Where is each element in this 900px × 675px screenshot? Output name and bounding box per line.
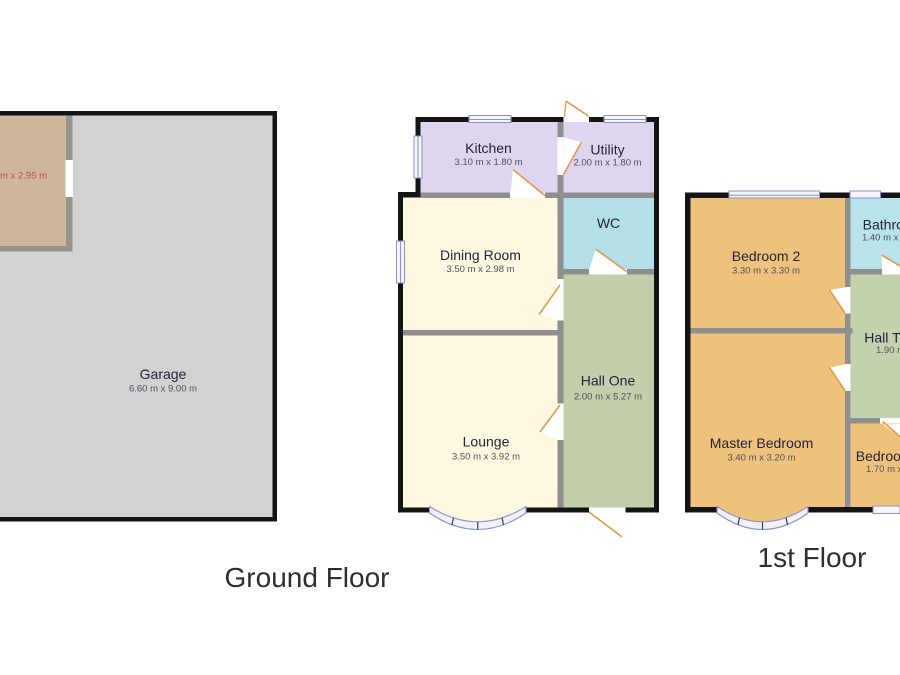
svg-text:3.40 m x 3.20 m: 3.40 m x 3.20 m <box>727 453 795 464</box>
svg-text:3.10 m x 1.80 m: 3.10 m x 1.80 m <box>454 157 522 168</box>
svg-text:Bedroom 2: Bedroom 2 <box>732 248 801 264</box>
svg-text:Bedroom 3: Bedroom 3 <box>856 448 900 464</box>
svg-text:1.70 m x 2.50 m: 1.70 m x 2.50 m <box>866 464 900 475</box>
svg-text:3.30 m x 3.30 m: 3.30 m x 3.30 m <box>732 266 800 277</box>
svg-text:Garage: Garage <box>140 366 187 382</box>
svg-text:Kitchen: Kitchen <box>465 140 512 156</box>
svg-text:Hall Two: Hall Two <box>864 330 900 346</box>
svg-text:2.00 m x 5.27 m: 2.00 m x 5.27 m <box>574 392 642 403</box>
svg-text:1st Floor: 1st Floor <box>758 542 867 573</box>
svg-text:Dining Room: Dining Room <box>440 247 521 263</box>
svg-text:Utility: Utility <box>590 142 624 158</box>
svg-text:Bathroom: Bathroom <box>863 217 900 233</box>
svg-text:1.90 m x 4.50 m: 1.90 m x 4.50 m <box>876 345 900 356</box>
svg-text:1.40 m x 2.00 m: 1.40 m x 2.00 m <box>862 233 900 244</box>
svg-text:Hall One: Hall One <box>581 373 636 389</box>
svg-text:3.50 m x 2.98 m: 3.50 m x 2.98 m <box>446 264 514 275</box>
svg-text:6.60 m x 9.00 m: 6.60 m x 9.00 m <box>129 384 197 395</box>
svg-text:Lounge: Lounge <box>463 434 510 450</box>
svg-text:Master Bedroom: Master Bedroom <box>710 435 813 451</box>
svg-text:Ground Floor: Ground Floor <box>225 562 390 593</box>
svg-text:2.00 m x 1.80 m: 2.00 m x 1.80 m <box>573 158 641 169</box>
svg-text:2.70 m x 2.95 m: 2.70 m x 2.95 m <box>0 171 47 182</box>
svg-text:3.50 m x 3.92 m: 3.50 m x 3.92 m <box>452 452 520 463</box>
svg-text:WC: WC <box>597 215 620 231</box>
